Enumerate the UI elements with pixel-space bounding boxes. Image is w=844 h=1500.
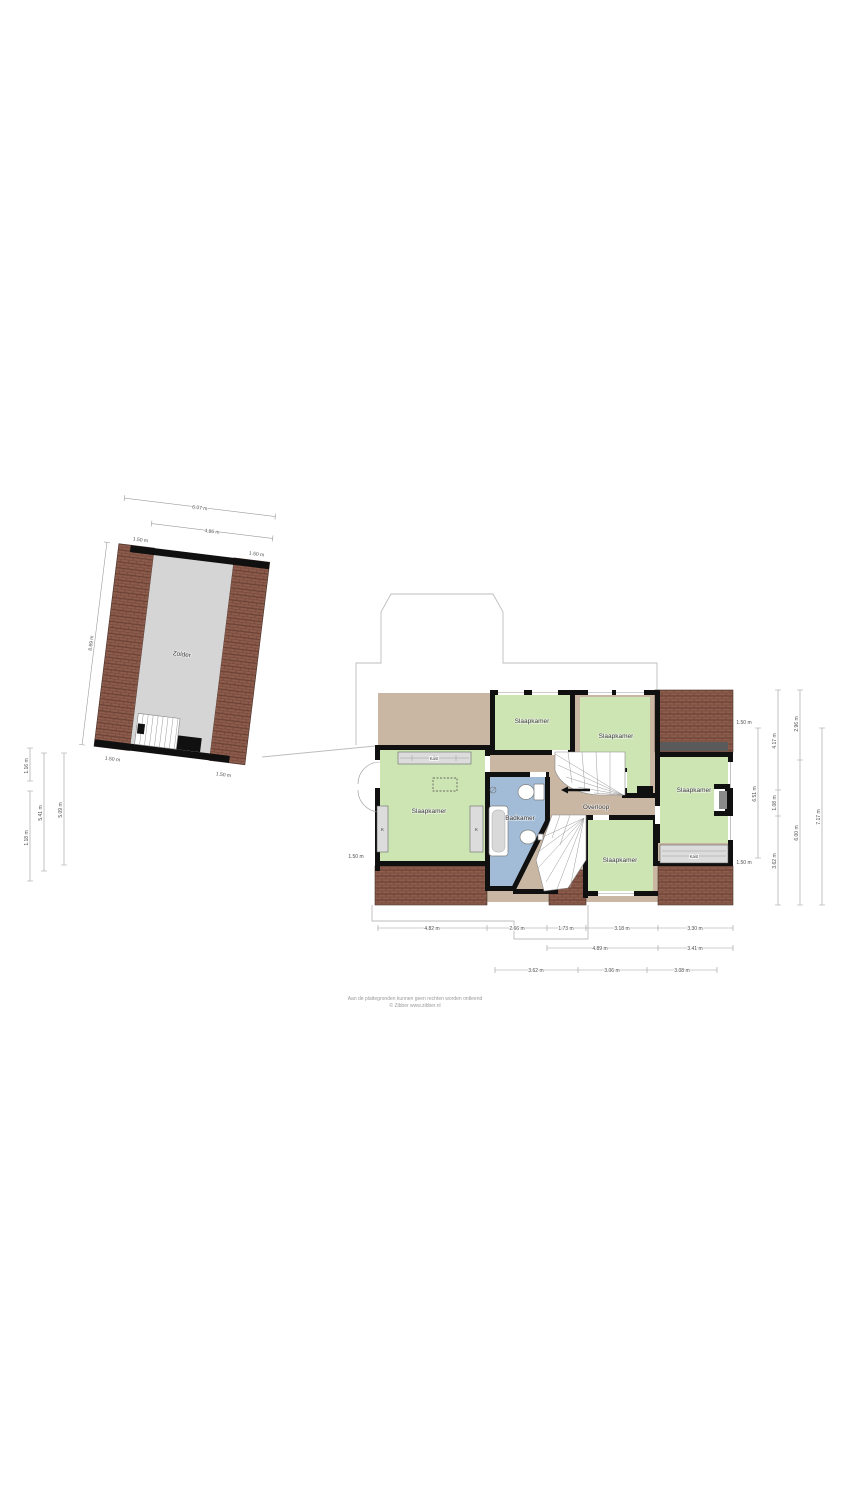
room-label-bathroom: Badkamer [505,815,535,822]
attribution-line-2: © Zibber www.zibber.nl [389,1002,440,1009]
closet-right: Kast [660,845,728,863]
closet-label: K [475,827,478,832]
dim-label: 4.17 m [772,733,778,748]
room-label-landing: Overloop [583,804,610,811]
dim-label: 3.41 m [687,946,702,952]
dim-label: 1.50 m [736,720,751,726]
closet-top: Kast [398,752,471,764]
attic-wall-stub [176,735,202,752]
dim-label: 1.50 m [249,551,265,559]
room-label-bedroom-right: Slaapkamer [677,787,713,794]
attic-block: Zolder 6.07 m 4.86 m 1.50 m 1.50 m 8.69 … [74,493,276,781]
dim-label: 1.50 m [132,536,148,544]
dim-label: 1.18 m [24,830,30,845]
dim-label: 6.07 m [192,504,208,512]
dim-label: 3.62 m [528,968,543,974]
dim-label: 3.18 m [614,926,629,932]
room-label-bedroom-left: Slaapkamer [412,808,448,815]
dim-label: 1.73 m [558,926,573,932]
dim-label: 3.08 m [674,968,689,974]
roof-area-bottom-left [375,866,487,905]
roof-area-bottom-right [658,866,733,905]
dim-label: 8.69 m [88,635,96,651]
dim-label: 5.41 m [38,805,44,820]
fireplace-niche [714,784,730,816]
dim-label: 2.66 m [509,926,524,932]
dim-label: 3.06 m [604,968,619,974]
dim-label: 2.96 m [794,716,800,731]
staircase-up [555,752,625,795]
left-dimensions: 1.16 m 1.18 m 5.41 m 5.09 m [24,748,67,881]
room-label-bedroom-bottom: Slaapkamer [603,857,639,864]
dim-label: 4.86 m [204,528,220,536]
room-label-bedroom-middle: Slaapkamer [599,733,635,740]
dim-label: 4.82 m [424,926,439,932]
closet-label: K [381,827,384,832]
floorplan-drawing: Zolder 6.07 m 4.86 m 1.50 m 1.50 m 8.69 … [0,0,844,1500]
main-floor: Kast K K Kast [358,690,733,905]
dim-label: 3.30 m [687,926,702,932]
attic-staircase [135,713,180,749]
dim-label: 1.50 m [348,854,363,860]
dim-label: 1.50 m [215,771,231,779]
dim-label: 6.51 m [752,786,758,801]
dim-label: 1.50 m [736,860,751,866]
room-label-bedroom-top: Slaapkamer [515,718,551,725]
dim-label: 1.08 m [772,795,778,810]
attribution-line-1: Aan de plattegronden kunnen geen rechten… [348,996,483,1002]
closet-label: Kast [690,854,700,859]
closet-k-left: K [377,806,388,852]
closet-label: Kast [430,756,440,761]
dim-label: 6.00 m [794,825,800,840]
toilet [518,784,544,800]
dim-label: 4.89 m [592,946,607,952]
knee-wall-band [658,742,728,751]
bathtub [489,806,508,856]
dim-label: 3.62 m [772,853,778,868]
attribution: Aan de plattegronden kunnen geen rechten… [348,996,483,1009]
dim-label: 5.09 m [58,802,64,817]
closet-k-right: K [470,806,483,852]
room-bedroom-left [380,750,485,863]
dim-label: 1.16 m [24,758,30,773]
dim-label: 1.50 m [105,756,121,764]
dim-label: 7.17 m [816,809,822,824]
floorplan-page: Zolder 6.07 m 4.86 m 1.50 m 1.50 m 8.69 … [0,0,844,1500]
